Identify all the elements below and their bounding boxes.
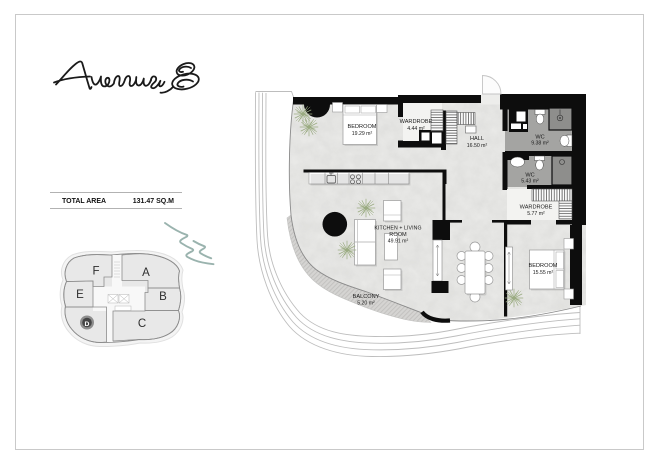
svg-text:BEDROOM: BEDROOM <box>348 124 377 130</box>
svg-text:BALCONY: BALCONY <box>353 294 380 300</box>
svg-text:D: D <box>85 321 90 328</box>
svg-text:F: F <box>92 266 99 278</box>
svg-text:49.91 m²: 49.91 m² <box>388 239 409 245</box>
svg-text:5.77 m²: 5.77 m² <box>527 211 545 217</box>
svg-text:E: E <box>76 289 84 301</box>
svg-text:B: B <box>159 291 167 303</box>
svg-text:A: A <box>142 267 150 279</box>
svg-text:HALL: HALL <box>470 136 484 142</box>
svg-text:16.50 m²: 16.50 m² <box>467 143 488 149</box>
svg-text:131.47 SQ.M: 131.47 SQ.M <box>133 198 174 205</box>
svg-text:9.38 m²: 9.38 m² <box>531 141 549 147</box>
svg-text:WARDROBE: WARDROBE <box>400 119 433 125</box>
svg-text:WARDROBE: WARDROBE <box>520 205 553 211</box>
svg-text:KITCHEN + LIVING: KITCHEN + LIVING <box>374 226 421 232</box>
svg-text:5.43 m²: 5.43 m² <box>521 179 539 185</box>
svg-text:ROOM: ROOM <box>389 232 407 238</box>
svg-text:19.29 m²: 19.29 m² <box>352 131 373 137</box>
svg-text:4.44 m²: 4.44 m² <box>407 126 425 132</box>
svg-text:TOTAL AREA: TOTAL AREA <box>62 198 106 205</box>
svg-text:15.55 m²: 15.55 m² <box>533 270 554 276</box>
svg-text:5.20 m²: 5.20 m² <box>357 301 375 307</box>
svg-text:BEDROOM: BEDROOM <box>529 263 558 269</box>
svg-text:C: C <box>138 318 146 330</box>
